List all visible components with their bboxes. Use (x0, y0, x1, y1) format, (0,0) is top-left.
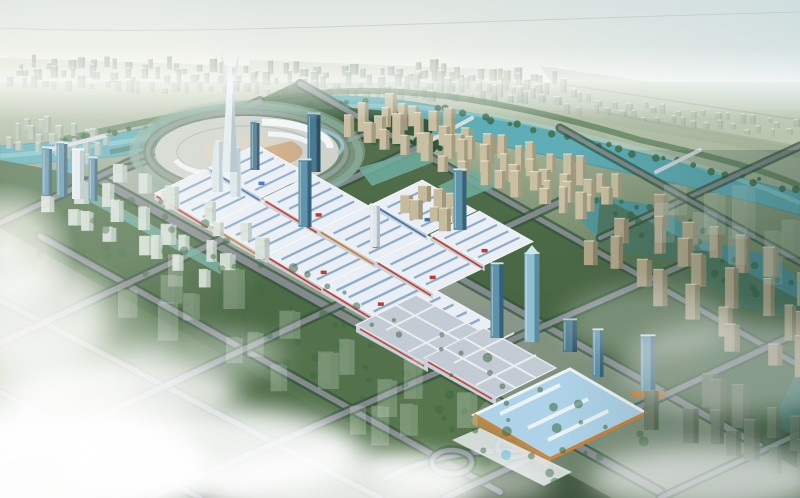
forecourt-pond (501, 450, 511, 460)
cloud (563, 286, 733, 358)
cloud (125, 329, 285, 381)
scene-canvas (0, 0, 800, 498)
aerial-city-rendering (0, 0, 800, 498)
cloud (370, 456, 470, 484)
